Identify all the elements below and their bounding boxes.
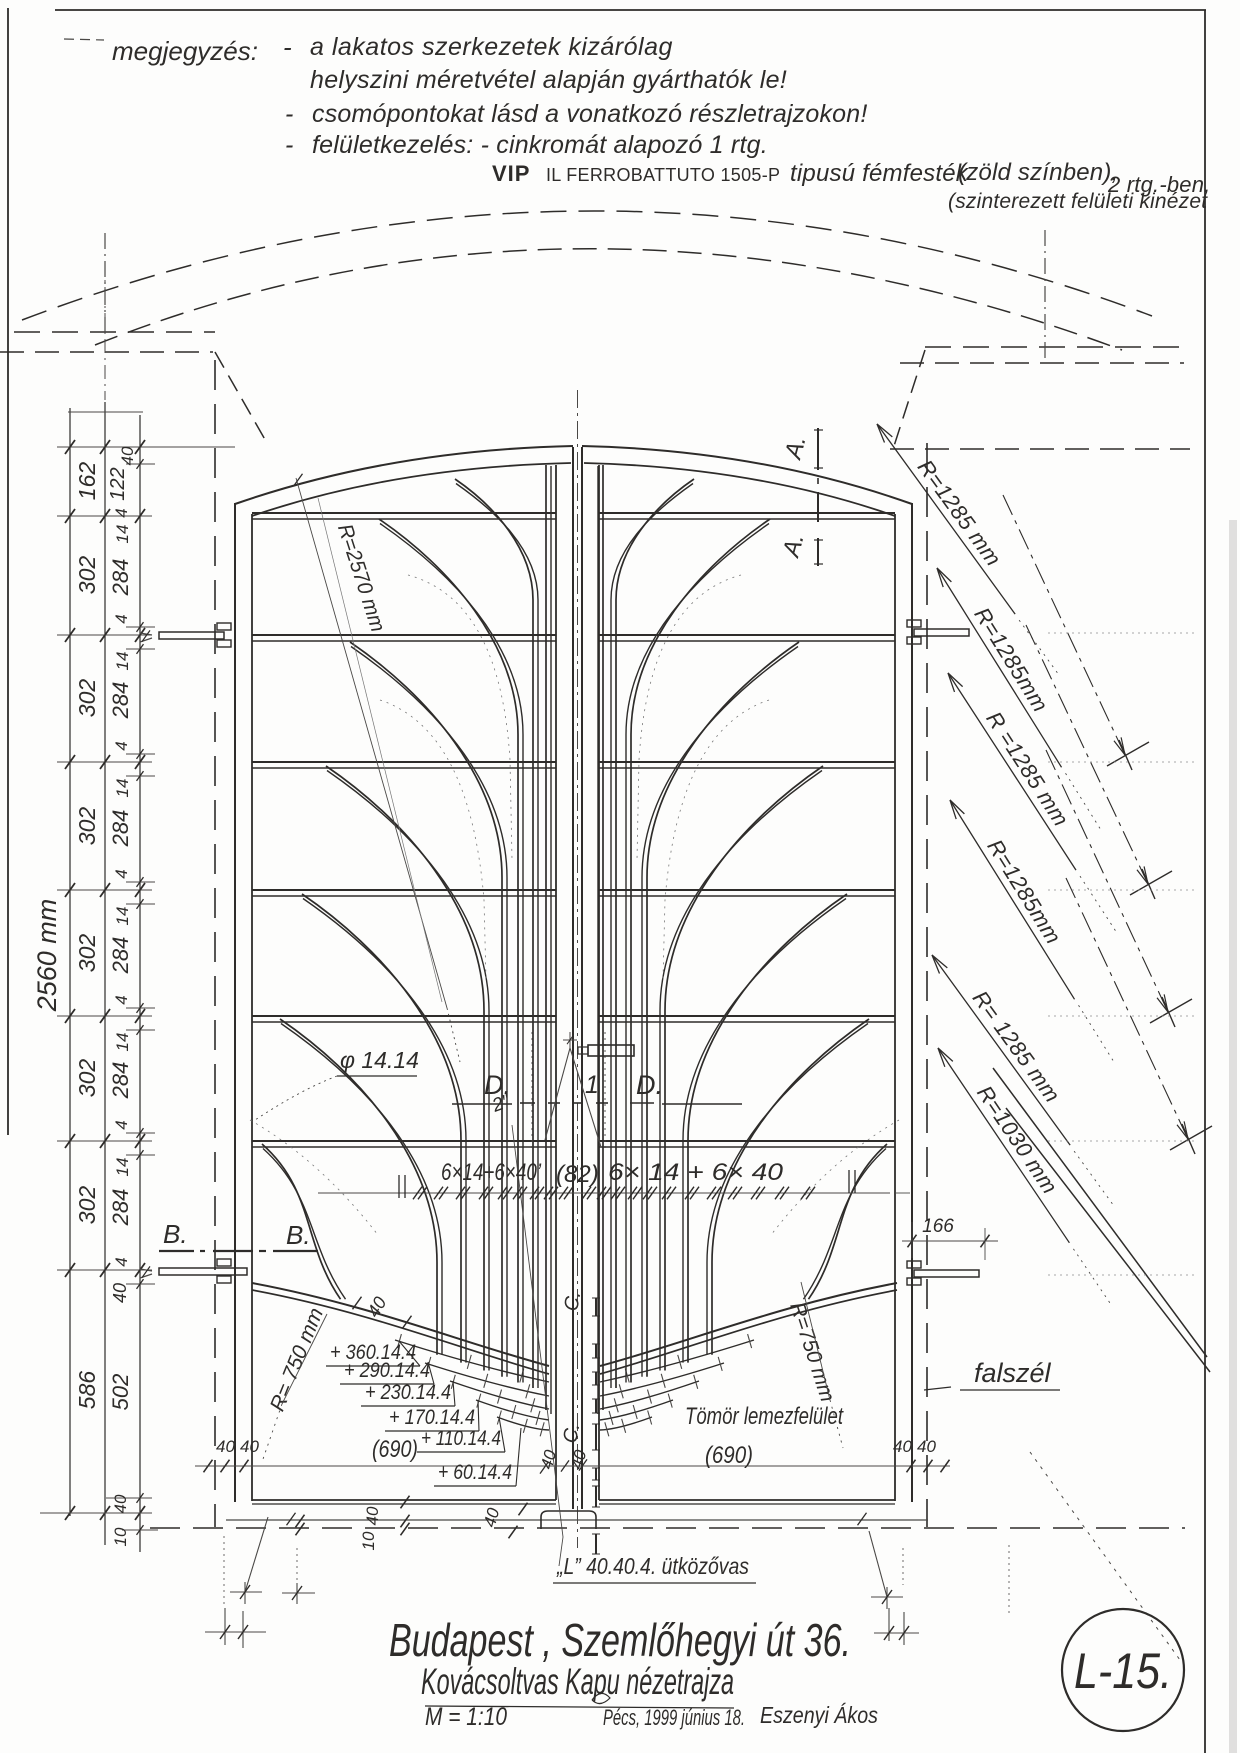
svg-text:A.: A. bbox=[777, 531, 809, 562]
svg-text:14: 14 bbox=[113, 907, 132, 926]
svg-text:40: 40 bbox=[111, 1494, 130, 1513]
svg-text:+ 170.14.4: + 170.14.4 bbox=[389, 1406, 475, 1429]
svg-text:4: 4 bbox=[112, 869, 131, 878]
svg-text:284: 284 bbox=[108, 682, 133, 720]
svg-text:302: 302 bbox=[74, 679, 100, 718]
svg-text:R=1285mm: R=1285mm bbox=[982, 835, 1066, 949]
svg-text:302: 302 bbox=[74, 934, 100, 973]
svg-text:284: 284 bbox=[108, 810, 133, 848]
svg-text:+ 290.14.4: + 290.14.4 bbox=[344, 1359, 430, 1382]
svg-text:C.: C. bbox=[560, 1289, 585, 1313]
svg-text:284: 284 bbox=[108, 1062, 133, 1100]
svg-text:B.: B. bbox=[286, 1220, 311, 1250]
svg-text:40: 40 bbox=[917, 1437, 936, 1456]
svg-text:302: 302 bbox=[74, 556, 100, 595]
svg-text:284: 284 bbox=[108, 1189, 133, 1227]
svg-text:a lakatos szerkezetek kizáróla: a lakatos szerkezetek kizárólag bbox=[310, 33, 673, 61]
svg-text:302: 302 bbox=[74, 807, 100, 846]
svg-text:Kovácsoltvas Kapu nézetrajza: Kovácsoltvas Kapu nézetrajza bbox=[421, 1661, 734, 1702]
svg-text:4: 4 bbox=[112, 741, 131, 750]
svg-text:+ 110.14.4: + 110.14.4 bbox=[421, 1427, 501, 1450]
svg-text:122: 122 bbox=[107, 467, 129, 500]
svg-text:(szinterezett felületi kinézet: (szinterezett felületi kinézet bbox=[948, 190, 1208, 213]
svg-text:„L” 40.40.4. ütközővas: „L” 40.40.4. ütközővas bbox=[556, 1553, 749, 1579]
svg-text:4: 4 bbox=[112, 508, 131, 517]
svg-text:162: 162 bbox=[74, 462, 100, 501]
svg-text:(82): (82) bbox=[556, 1161, 599, 1188]
svg-text:IL FERROBATTUTO 1505-P: IL FERROBATTUTO 1505-P bbox=[546, 165, 780, 185]
svg-text:40: 40 bbox=[480, 1505, 503, 1529]
svg-text:40: 40 bbox=[216, 1437, 235, 1456]
svg-text:Tömör lemezfelület: Tömör lemezfelület bbox=[685, 1403, 844, 1430]
svg-text:40: 40 bbox=[363, 1506, 382, 1525]
svg-text:Eszenyi Ákos: Eszenyi Ákos bbox=[760, 1702, 878, 1728]
svg-text:+ 60.14.4: + 60.14.4 bbox=[438, 1461, 512, 1484]
svg-text:-: - bbox=[283, 32, 292, 62]
svg-text:14: 14 bbox=[113, 525, 132, 544]
svg-text:40: 40 bbox=[893, 1437, 912, 1456]
svg-text:40: 40 bbox=[110, 1283, 130, 1303]
svg-text:R=750 mm: R=750 mm bbox=[785, 1299, 839, 1404]
svg-text:falszél: falszél bbox=[974, 1358, 1052, 1388]
svg-text:1: 1 bbox=[585, 1071, 599, 1099]
svg-text:40: 40 bbox=[240, 1437, 259, 1456]
svg-text:40: 40 bbox=[537, 1447, 560, 1471]
svg-text:4: 4 bbox=[112, 1257, 131, 1266]
svg-text:M = 1:10: M = 1:10 bbox=[425, 1703, 507, 1731]
svg-text:284: 284 bbox=[108, 559, 133, 597]
svg-text:502: 502 bbox=[108, 1374, 133, 1411]
svg-text:helyszini méretvétel alapján g: helyszini méretvétel alapján gyárthatók … bbox=[310, 66, 787, 94]
svg-text:284: 284 bbox=[108, 937, 133, 975]
svg-text:2560 mm: 2560 mm bbox=[32, 899, 62, 1013]
svg-text:4: 4 bbox=[112, 995, 131, 1004]
svg-text:R =1285 mm: R =1285 mm bbox=[981, 707, 1074, 831]
svg-text:10: 10 bbox=[359, 1531, 378, 1550]
svg-text:B.: B. bbox=[163, 1219, 188, 1249]
svg-text:Budapest , Szemlőhegyi út 36.: Budapest , Szemlőhegyi út 36. bbox=[389, 1614, 851, 1666]
svg-text:C.: C. bbox=[559, 1421, 584, 1445]
svg-text:R= 750 mm: R= 750 mm bbox=[266, 1305, 328, 1415]
svg-text:megjegyzés:: megjegyzés: bbox=[112, 36, 258, 66]
svg-text:14: 14 bbox=[113, 1158, 132, 1177]
svg-text:14: 14 bbox=[113, 779, 132, 798]
svg-text:-: - bbox=[285, 100, 293, 128]
svg-text:40: 40 bbox=[118, 446, 137, 465]
svg-text:4: 4 bbox=[112, 1120, 131, 1129]
svg-text:tipusú fémfesték: tipusú fémfesték bbox=[790, 160, 970, 187]
svg-text:40: 40 bbox=[567, 1447, 590, 1471]
svg-text:csomópontokat lásd a vonatkozó: csomópontokat lásd a vonatkozó részletra… bbox=[312, 100, 868, 128]
svg-text:D.: D. bbox=[636, 1070, 663, 1100]
svg-text:R=1285mm: R=1285mm bbox=[969, 603, 1053, 717]
svg-text:-: - bbox=[285, 131, 293, 159]
svg-text:R=2570 mm: R=2570 mm bbox=[333, 521, 389, 635]
svg-text:302: 302 bbox=[74, 1186, 100, 1225]
svg-text:14: 14 bbox=[113, 652, 132, 671]
svg-text:10: 10 bbox=[111, 1527, 130, 1546]
svg-text:586: 586 bbox=[74, 1371, 100, 1410]
svg-text:14: 14 bbox=[113, 1033, 132, 1052]
svg-text:302: 302 bbox=[74, 1059, 100, 1098]
svg-text:4: 4 bbox=[112, 614, 131, 623]
svg-text:(690): (690) bbox=[705, 1442, 753, 1469]
svg-text:(zöld színben),: (zöld színben), bbox=[958, 159, 1118, 186]
svg-text:166: 166 bbox=[922, 1216, 954, 1237]
svg-text:L-15.: L-15. bbox=[1074, 1643, 1172, 1699]
svg-text:Pécs, 1999 június 18.: Pécs, 1999 június 18. bbox=[603, 1705, 745, 1730]
svg-text:A.: A. bbox=[779, 433, 811, 464]
svg-text:felületkezelés: - cinkromát: felületkezelés: - cinkromát alapozó 1 rt… bbox=[312, 131, 768, 159]
svg-text:6×14+6×40’: 6×14+6×40’ bbox=[441, 1159, 542, 1186]
svg-text:VIP: VIP bbox=[492, 161, 530, 186]
svg-text:+ 230.14.4: + 230.14.4 bbox=[365, 1381, 451, 1404]
svg-text:φ 14.14: φ 14.14 bbox=[340, 1047, 419, 1073]
svg-text:(690): (690) bbox=[372, 1436, 418, 1463]
svg-text:6× 14 + 6× 40: 6× 14 + 6× 40 bbox=[608, 1159, 784, 1186]
